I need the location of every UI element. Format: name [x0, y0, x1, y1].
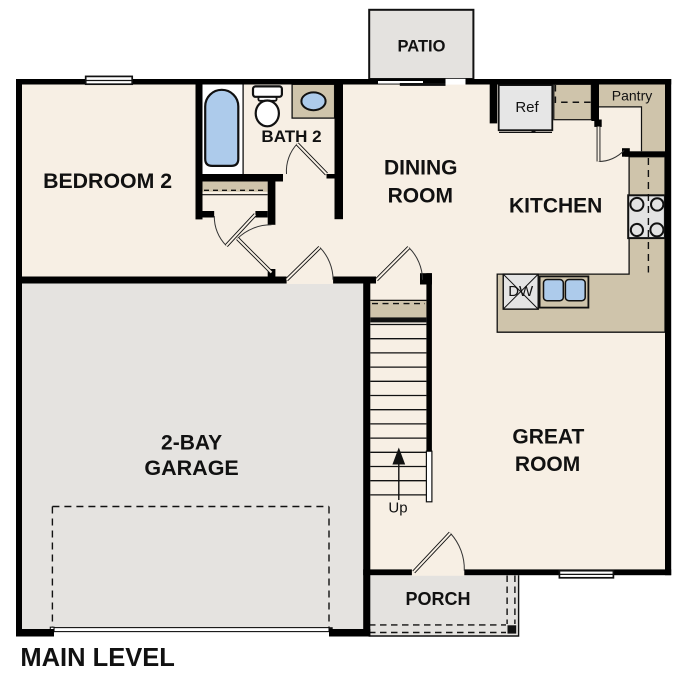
svg-text:ROOM: ROOM	[515, 453, 580, 476]
svg-text:MAIN LEVEL: MAIN LEVEL	[20, 644, 174, 672]
svg-text:PORCH: PORCH	[405, 589, 470, 609]
svg-text:GREAT: GREAT	[512, 425, 584, 448]
svg-text:ROOM: ROOM	[388, 184, 453, 207]
svg-text:KITCHEN: KITCHEN	[509, 194, 602, 217]
svg-text:Up: Up	[388, 500, 407, 517]
svg-text:BATH 2: BATH 2	[261, 127, 321, 146]
svg-text:2-BAY: 2-BAY	[161, 432, 222, 455]
svg-text:Ref: Ref	[515, 99, 539, 116]
svg-text:GARAGE: GARAGE	[144, 456, 238, 480]
svg-text:BEDROOM 2: BEDROOM 2	[43, 169, 172, 193]
svg-text:DW: DW	[508, 283, 534, 300]
svg-text:PATIO: PATIO	[398, 37, 446, 55]
svg-text:Pantry: Pantry	[612, 88, 652, 104]
svg-text:DINING: DINING	[384, 157, 458, 180]
